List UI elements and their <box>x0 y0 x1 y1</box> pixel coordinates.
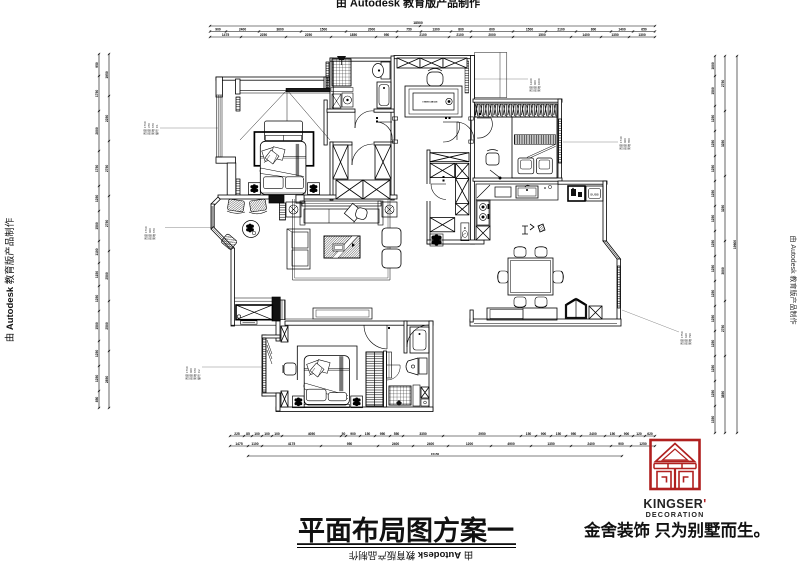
svg-text:1750: 1750 <box>95 165 99 173</box>
svg-text:1750: 1750 <box>95 90 99 98</box>
svg-text:1400: 1400 <box>618 28 626 32</box>
svg-text:编号 C2: 编号 C2 <box>196 369 201 380</box>
svg-text:1500: 1500 <box>320 28 328 32</box>
svg-text:3250: 3250 <box>721 140 725 148</box>
svg-text:离地 790: 离地 790 <box>687 333 692 345</box>
svg-text:900: 900 <box>215 28 221 32</box>
svg-text:1250: 1250 <box>711 290 715 298</box>
svg-text:离地 670: 离地 670 <box>151 228 156 240</box>
svg-text:900: 900 <box>624 432 630 436</box>
svg-text:DECORATION: DECORATION <box>646 510 705 519</box>
svg-text:1500: 1500 <box>95 222 99 230</box>
svg-text:550: 550 <box>394 432 400 436</box>
svg-text:620: 620 <box>647 432 653 436</box>
svg-text:2400: 2400 <box>427 442 435 446</box>
svg-text:1350: 1350 <box>547 442 555 446</box>
svg-text:由 Autodesk 教育版产品制作: 由 Autodesk 教育版产品制作 <box>348 549 473 561</box>
svg-text:1100: 1100 <box>251 442 258 446</box>
svg-text:1400: 1400 <box>582 33 590 37</box>
svg-text:120: 120 <box>636 432 642 436</box>
svg-text:1250: 1250 <box>639 442 647 446</box>
svg-text:离地 1000: 离地 1000 <box>536 78 541 92</box>
svg-text:编号 C1: 编号 C1 <box>154 124 159 135</box>
svg-text:1000: 1000 <box>711 62 715 70</box>
svg-text:BUBB: BUBB <box>590 193 598 197</box>
svg-text:1250: 1250 <box>711 115 715 123</box>
svg-text:150: 150 <box>526 432 532 436</box>
svg-text:1950: 1950 <box>105 71 109 79</box>
svg-text:1500: 1500 <box>711 87 715 95</box>
svg-text:950: 950 <box>571 432 577 436</box>
svg-text:100: 100 <box>274 432 280 436</box>
svg-text:1250: 1250 <box>95 195 99 203</box>
svg-text:150: 150 <box>365 432 371 436</box>
svg-text:1250: 1250 <box>711 215 715 223</box>
svg-text:3350: 3350 <box>419 432 427 436</box>
svg-text:3250: 3250 <box>721 205 725 213</box>
svg-text:650: 650 <box>641 28 647 32</box>
svg-text:1350: 1350 <box>611 33 619 37</box>
svg-text:2750: 2750 <box>721 80 725 88</box>
svg-text:150: 150 <box>556 432 562 436</box>
svg-text:4050: 4050 <box>308 432 316 436</box>
svg-text:1300: 1300 <box>432 28 440 32</box>
svg-text:1250: 1250 <box>711 390 715 398</box>
svg-text:3600: 3600 <box>276 28 284 32</box>
svg-text:900: 900 <box>541 432 547 436</box>
svg-text:2250: 2250 <box>260 33 268 37</box>
svg-text:1250: 1250 <box>95 375 99 383</box>
svg-text:3850: 3850 <box>721 391 725 399</box>
svg-text:1250: 1250 <box>711 365 715 373</box>
svg-text:1250: 1250 <box>711 165 715 173</box>
svg-text:600: 600 <box>489 28 495 32</box>
svg-text:15150: 15150 <box>431 452 440 456</box>
svg-text:KINGSER': KINGSER' <box>643 497 706 511</box>
svg-text:2400: 2400 <box>392 442 400 446</box>
svg-text:2000: 2000 <box>368 28 376 32</box>
svg-text:1250: 1250 <box>95 295 99 303</box>
svg-text:2100: 2100 <box>557 28 565 32</box>
svg-text:2250: 2250 <box>105 115 109 123</box>
svg-text:800: 800 <box>458 28 464 32</box>
svg-text:50: 50 <box>342 432 346 436</box>
svg-text:2100: 2100 <box>456 33 464 37</box>
svg-text:由 Autodesk 教育版产品制作: 由 Autodesk 教育版产品制作 <box>336 0 480 10</box>
svg-text:1100: 1100 <box>95 248 99 255</box>
svg-text:225: 225 <box>234 432 240 436</box>
svg-text:2500: 2500 <box>105 322 109 330</box>
svg-text:2250: 2250 <box>305 33 313 37</box>
svg-text:2000: 2000 <box>95 127 99 135</box>
svg-text:2000: 2000 <box>488 33 496 37</box>
svg-text:18500: 18500 <box>413 21 423 25</box>
svg-text:100: 100 <box>254 432 260 436</box>
svg-text:1850: 1850 <box>350 33 358 37</box>
svg-text:1250: 1250 <box>711 190 715 198</box>
svg-text:85: 85 <box>246 432 250 436</box>
svg-text:950: 950 <box>380 432 386 436</box>
svg-text:1250: 1250 <box>711 315 715 323</box>
svg-text:850: 850 <box>95 397 99 403</box>
svg-text:19600: 19600 <box>733 240 737 249</box>
svg-text:1250: 1250 <box>95 350 99 358</box>
svg-text:950: 950 <box>347 442 353 446</box>
svg-text:1250: 1250 <box>711 240 715 248</box>
svg-text:100: 100 <box>264 432 270 436</box>
svg-text:2400: 2400 <box>239 28 247 32</box>
svg-text:离地 650: 离地 650 <box>626 138 631 150</box>
svg-text:1500: 1500 <box>526 28 534 32</box>
svg-text:950: 950 <box>384 33 390 37</box>
svg-text:3000: 3000 <box>721 267 725 275</box>
svg-text:2400: 2400 <box>589 432 597 436</box>
svg-text:2750: 2750 <box>105 220 109 228</box>
svg-text:1500: 1500 <box>95 322 99 330</box>
svg-text:1250: 1250 <box>711 140 715 148</box>
svg-text:1300: 1300 <box>638 33 646 37</box>
svg-text:4900: 4900 <box>507 442 515 446</box>
svg-text:2750: 2750 <box>105 165 109 173</box>
svg-text:1150: 1150 <box>95 271 99 278</box>
svg-text:1200: 1200 <box>466 442 474 446</box>
svg-text:950: 950 <box>95 62 99 68</box>
svg-text:750: 750 <box>406 28 412 32</box>
svg-text:由 Autodesk 教育版产品制作: 由 Autodesk 教育版产品制作 <box>789 235 798 324</box>
svg-text:平面布局图方案一: 平面布局图方案一 <box>298 515 514 546</box>
svg-text:1250: 1250 <box>711 265 715 273</box>
svg-text:2400: 2400 <box>587 442 595 446</box>
svg-text:2100: 2100 <box>419 33 427 37</box>
svg-text:2850: 2850 <box>105 376 109 384</box>
svg-text:1475: 1475 <box>235 442 243 446</box>
svg-text:金舍装饰 只为别墅而生。: 金舍装饰 只为别墅而生。 <box>583 520 770 540</box>
svg-text:2950: 2950 <box>478 432 486 436</box>
svg-text:4175: 4175 <box>288 442 296 446</box>
svg-text:150: 150 <box>610 432 616 436</box>
svg-text:1500: 1500 <box>538 33 546 37</box>
svg-text:由 Autodesk 教育版产品制作: 由 Autodesk 教育版产品制作 <box>4 217 16 342</box>
svg-text:800: 800 <box>591 28 597 32</box>
svg-text:I MEMO ABCDE: I MEMO ABCDE <box>423 101 439 104</box>
svg-text:900: 900 <box>350 432 356 436</box>
svg-text:900: 900 <box>618 442 624 446</box>
svg-text:2500: 2500 <box>105 272 109 280</box>
svg-text:1475: 1475 <box>222 33 230 37</box>
svg-text:1350: 1350 <box>711 416 715 424</box>
svg-text:2750: 2750 <box>721 325 725 333</box>
svg-text:1250: 1250 <box>711 340 715 348</box>
